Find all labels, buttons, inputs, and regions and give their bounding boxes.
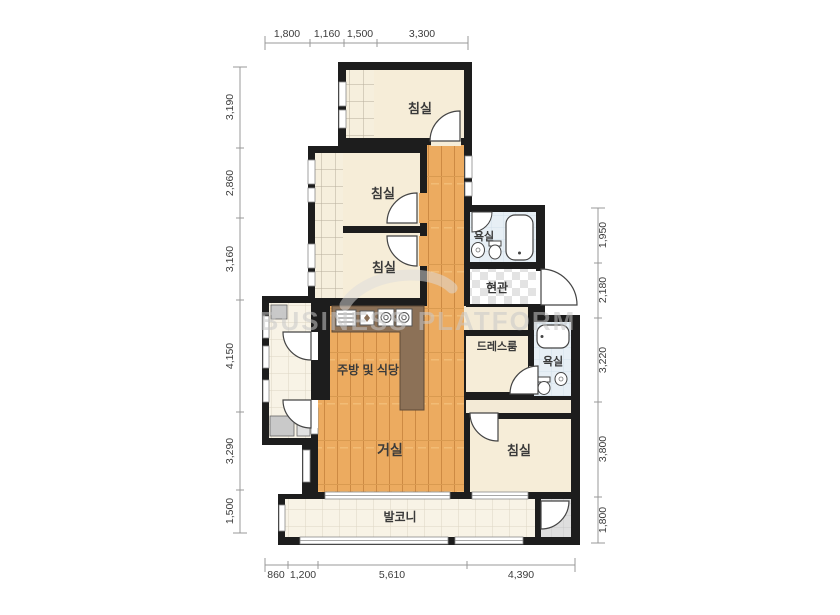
window: [308, 244, 315, 268]
dim-right-3: 3,800: [597, 436, 609, 462]
dimension-labels-top: 1,800 1,160 1,500 3,300: [274, 28, 435, 40]
floorplan-svg: BUSINESS PLATFORM 침실 침실 침실 욕실 현관 드레스룸 욕실…: [0, 0, 840, 615]
label-entrance: 현관: [486, 280, 508, 295]
window: [308, 188, 315, 202]
dim-right-1: 2,180: [597, 277, 609, 303]
window: [308, 272, 315, 286]
dimension-labels-left: 3,190 2,860 3,160 4,150 3,290 1,500: [224, 94, 236, 524]
window: [465, 182, 472, 196]
dimension-chain-right: [591, 208, 605, 543]
dim-top-3: 3,300: [409, 28, 435, 40]
toilet-icon: [538, 377, 550, 395]
label-bath-lower: 욕실: [543, 354, 563, 368]
window: [263, 346, 269, 368]
dim-left-3: 4,150: [224, 343, 236, 369]
closet-strip-mid: [315, 153, 343, 298]
sink-icon: [472, 243, 485, 258]
floorplan-canvas: BUSINESS PLATFORM 침실 침실 침실 욕실 현관 드레스룸 욕실…: [0, 0, 840, 615]
dim-right-2: 3,220: [597, 347, 609, 373]
dim-left-1: 2,860: [224, 170, 236, 196]
dim-top-1: 1,160: [314, 28, 340, 40]
room-bedroom-top-closet: [346, 70, 374, 138]
label-bedroom-top: 침실: [408, 101, 432, 116]
dimension-labels-bottom: 860 1,200 5,610 4,390: [267, 569, 534, 581]
label-kitchen-dining: 주방 및 식당: [337, 362, 399, 377]
label-bedroom-right: 침실: [507, 443, 531, 458]
window: [339, 82, 346, 106]
window: [279, 505, 285, 531]
dimension-labels-right: 1,950 2,180 3,220 3,800 1,800: [597, 222, 609, 533]
dim-top-0: 1,800: [274, 28, 300, 40]
dim-bottom-3: 4,390: [508, 569, 534, 581]
window: [303, 450, 310, 482]
dim-bottom-1: 1,200: [290, 569, 316, 581]
dim-left-4: 3,290: [224, 438, 236, 464]
window: [339, 110, 346, 128]
dim-left-5: 1,500: [224, 498, 236, 524]
window: [308, 160, 315, 184]
watermark-text: BUSINESS PLATFORM: [260, 306, 577, 336]
dim-right-4: 1,800: [597, 507, 609, 533]
dim-top-2: 1,500: [347, 28, 373, 40]
window: [465, 156, 472, 178]
window: [263, 380, 269, 402]
label-living-room: 거실: [377, 442, 403, 458]
dim-bottom-2: 5,610: [379, 569, 405, 581]
dim-right-0: 1,950: [597, 222, 609, 248]
label-bedroom-mid-upper: 침실: [371, 186, 395, 201]
label-balcony: 발코니: [383, 509, 416, 524]
toilet-icon: [489, 241, 501, 259]
label-dress-room: 드레스룸: [477, 339, 517, 353]
label-bath-upper: 욕실: [474, 229, 494, 243]
dim-left-2: 3,160: [224, 246, 236, 272]
dim-bottom-0: 860: [267, 569, 285, 581]
dim-left-0: 3,190: [224, 94, 236, 120]
sink-icon: [555, 373, 567, 386]
label-bedroom-mid-lower: 침실: [372, 260, 396, 275]
door-arc: [541, 269, 577, 305]
